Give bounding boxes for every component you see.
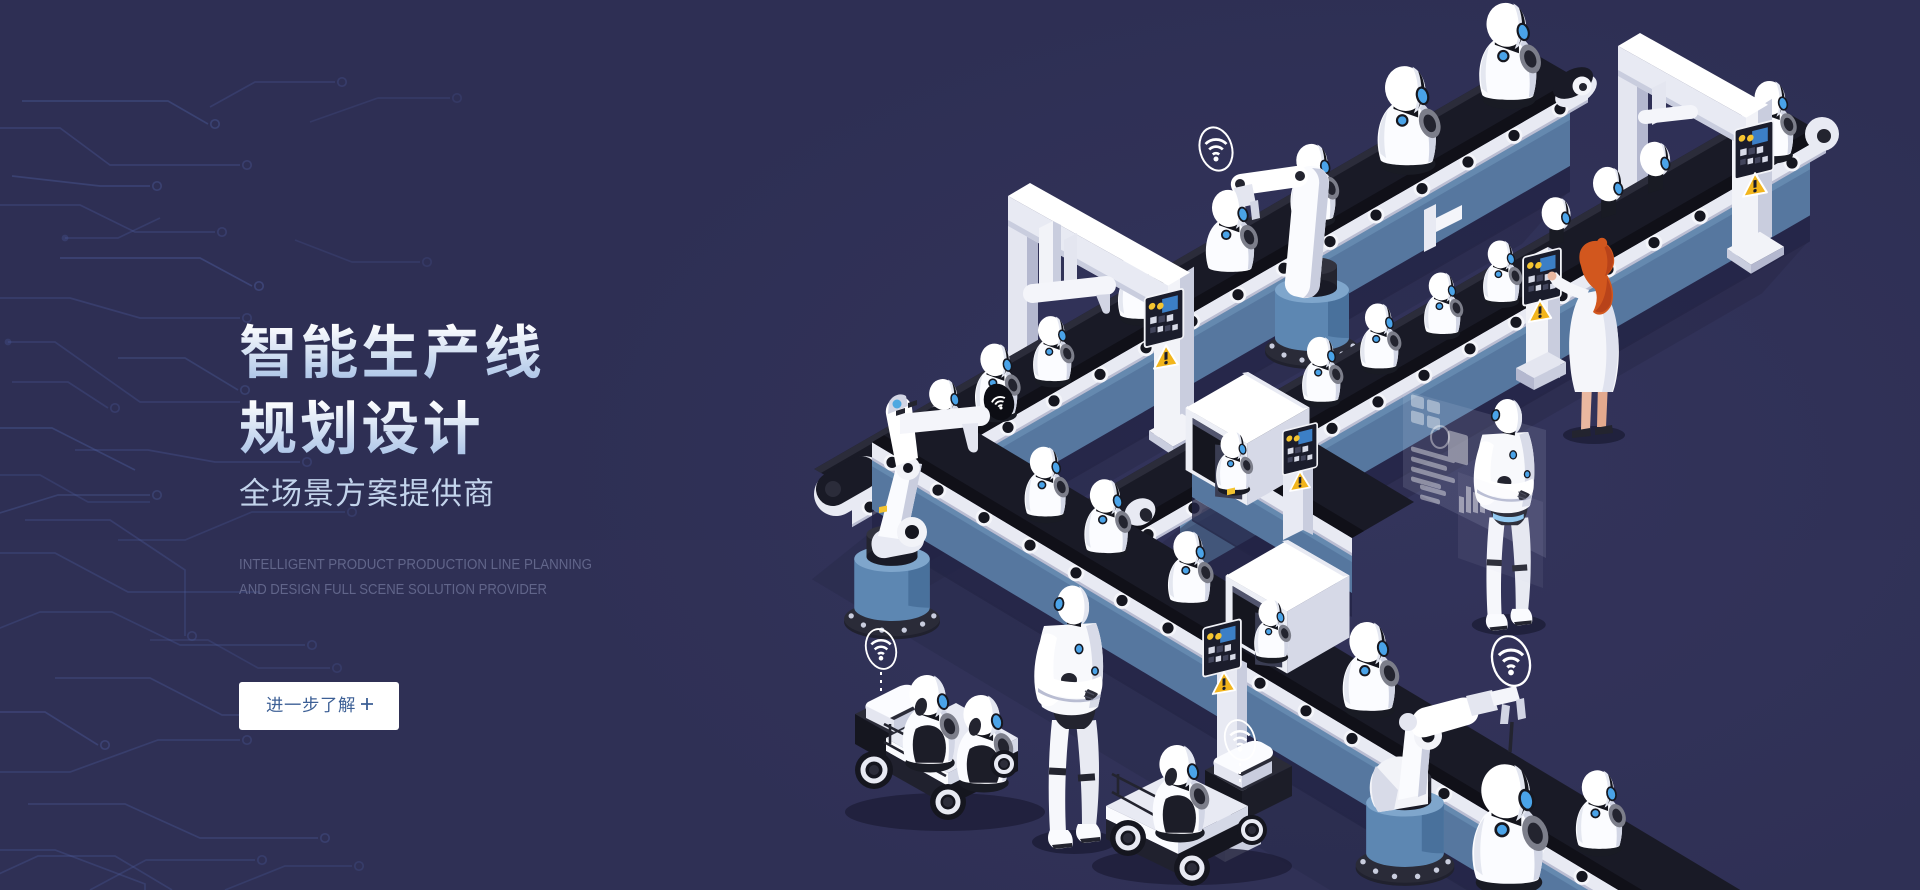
svg-text:AND DESIGN FULL SCENE SOLUTION: AND DESIGN FULL SCENE SOLUTION PROVIDER: [239, 581, 547, 598]
svg-text:INTELLIGENT PRODUCT PRODUCTION: INTELLIGENT PRODUCT PRODUCTION LINE PLAN…: [239, 556, 592, 573]
